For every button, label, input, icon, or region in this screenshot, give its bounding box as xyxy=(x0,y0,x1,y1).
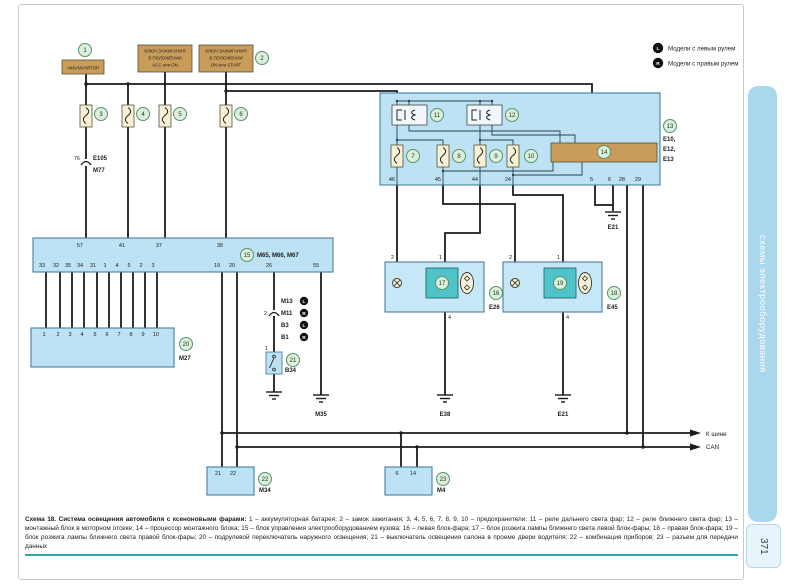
bcm-pin-19: 19 xyxy=(214,263,220,269)
fuse-7-icon xyxy=(391,145,403,167)
page-number: 371 xyxy=(758,538,769,555)
relay-low-beam xyxy=(467,105,502,125)
num-14: 14 xyxy=(601,150,608,156)
caption-title: Схема 18. Система освещения автомобиля с… xyxy=(25,516,247,523)
fuse-10-icon xyxy=(507,145,519,167)
door-conn-pin: 2 xyxy=(264,311,267,317)
bcm-pin-33: 33 xyxy=(39,263,45,269)
hl-right-pin-4: 4 xyxy=(566,315,569,321)
mount-pin-24: 24 xyxy=(505,177,511,183)
m4-pin-14: 14 xyxy=(410,471,416,477)
section-tab: схемы электрооборудования xyxy=(748,86,777,522)
badge-r-1: R xyxy=(302,311,306,317)
bcm-pin-38: 38 xyxy=(217,243,223,249)
fuse-8-icon xyxy=(437,145,449,167)
num-10: 10 xyxy=(528,154,535,160)
ground-icon-e21-mount xyxy=(605,212,621,219)
door-switch-box xyxy=(266,352,282,374)
fuse-3-icon xyxy=(80,105,92,127)
e105-pin: 76 xyxy=(74,156,80,162)
can-label-1: К шине xyxy=(706,431,727,438)
num-16: 16 xyxy=(493,291,500,297)
m27-pin-4: 4 xyxy=(80,332,83,338)
hl-left-pin-1: 1 xyxy=(439,255,442,261)
legend-badge-r: R xyxy=(656,61,660,67)
mount-pin-6: 6 xyxy=(608,177,611,183)
m27-pin-6: 6 xyxy=(105,332,108,338)
m27-pin-2: 2 xyxy=(56,332,59,338)
num-20: 20 xyxy=(183,342,190,348)
ground-label-e21-mount: E21 xyxy=(608,225,619,231)
door-switch-name: B34 xyxy=(285,368,297,374)
hl-left-pin-4: 4 xyxy=(448,315,451,321)
can-arrow-2 xyxy=(690,444,701,451)
conn-b1: B1 xyxy=(281,335,289,341)
hl-right-pin-1: 1 xyxy=(557,255,560,261)
m34-name: M34 xyxy=(259,488,271,494)
ground-icon-m35 xyxy=(313,395,329,402)
conn-m11: M11 xyxy=(281,311,293,317)
xenon-bulb-icon-left xyxy=(461,273,474,294)
num-21: 21 xyxy=(290,358,297,364)
ignition-on-line1: КЛЮЧ ЗАЖИГАНИЯ xyxy=(205,49,246,54)
bcm-pin-41: 41 xyxy=(119,243,125,249)
mount-pin-45: 45 xyxy=(435,177,441,183)
fuse-9-icon xyxy=(474,145,486,167)
bcm-pin-1: 1 xyxy=(103,263,106,269)
ground-icon-door xyxy=(266,392,282,399)
m34-pin-21: 21 xyxy=(215,471,221,477)
bcm-pin-57: 57 xyxy=(77,243,83,249)
fuse-5-icon xyxy=(159,105,171,127)
lhd-rhd-badges: L R L R xyxy=(300,297,308,341)
num-17: 17 xyxy=(439,281,446,287)
legend: L Модели с левым рулем R Модели с правым… xyxy=(653,43,739,68)
ground-label-e21-right: E21 xyxy=(558,412,569,418)
hl-left-pin-2: 2 xyxy=(391,255,394,261)
num-23: 23 xyxy=(440,477,447,483)
mount-pin-28: 28 xyxy=(619,177,625,183)
mount-pin-5: 5 xyxy=(590,177,593,183)
m77-label: M77 xyxy=(93,168,105,174)
num-22: 22 xyxy=(262,477,269,483)
conn-m13: M13 xyxy=(281,299,293,305)
m27-pin-5: 5 xyxy=(93,332,96,338)
m4-pin-6: 6 xyxy=(395,471,398,477)
mount-pin-29: 29 xyxy=(635,177,641,183)
legend-label-l: Модели с левым рулем xyxy=(668,46,735,53)
lamp-icon-right xyxy=(511,279,520,288)
battery-label: АККУМУЛЯТОР xyxy=(67,66,99,71)
relay-high-beam xyxy=(392,105,427,125)
bcm-pin-35: 35 xyxy=(65,263,71,269)
section-tab-label: схемы электрооборудования xyxy=(757,235,768,373)
xenon-bulb-icon-right xyxy=(579,273,592,294)
m27-pin-8: 8 xyxy=(129,332,132,338)
connector-chevron-icon xyxy=(81,162,91,166)
bcm-name: M65, M66, M67 xyxy=(257,253,299,259)
ignition-on-line3: ON или START xyxy=(211,63,242,68)
door-switch-pin-1: 1 xyxy=(265,346,268,352)
fuse-4-icon xyxy=(122,105,134,127)
hl-right-pin-2: 2 xyxy=(509,255,512,261)
mount-pin-44: 44 xyxy=(472,177,478,183)
ground-label-e38: E38 xyxy=(440,412,451,418)
legend-label-r: Модели с правым рулем xyxy=(668,61,739,68)
mount-pin-46: 46 xyxy=(389,177,395,183)
bcm-pin-32: 32 xyxy=(53,263,59,269)
can-arrow-1 xyxy=(690,430,701,437)
bcm-pin-20: 20 xyxy=(229,263,235,269)
m27-pin-9: 9 xyxy=(141,332,144,338)
ground-icon-e38 xyxy=(437,395,453,402)
m4-name: M4 xyxy=(437,488,446,494)
ground-label-m35: M35 xyxy=(315,412,327,418)
manual-page: АККУМУЛЯТОР КЛЮЧ ЗАЖИГАНИЯ В ПОЛОЖЕНИИ A… xyxy=(0,0,800,588)
wiring-diagram: АККУМУЛЯТОР КЛЮЧ ЗАЖИГАНИЯ В ПОЛОЖЕНИИ A… xyxy=(0,0,745,512)
conn-b3: B3 xyxy=(281,323,289,329)
bcm-pin-37: 37 xyxy=(156,243,162,249)
m27-pin-1: 1 xyxy=(42,332,45,338)
bcm-pin-55: 55 xyxy=(313,263,319,269)
bcm-pin-2: 2 xyxy=(139,263,142,269)
legend-badge-l: L xyxy=(657,46,660,52)
can-label-2: CAN xyxy=(706,444,719,451)
badge-r-2: R xyxy=(302,335,306,341)
m34-pin-22: 22 xyxy=(230,471,236,477)
num-15: 15 xyxy=(244,253,251,259)
badge-l-1: L xyxy=(303,299,306,305)
ignition-acc-line2: В ПОЛОЖЕНИИ xyxy=(148,56,181,61)
caption-divider xyxy=(25,554,738,556)
hl-right-name: E45 xyxy=(607,305,618,311)
num-18: 18 xyxy=(611,291,618,297)
mount-ref-e13: E13 xyxy=(663,157,674,163)
num-19: 19 xyxy=(557,281,564,287)
num-12: 12 xyxy=(509,113,516,119)
badge-l-2: L xyxy=(303,323,306,329)
ignition-acc-line1: КЛЮЧ ЗАЖИГАНИЯ xyxy=(144,49,185,54)
m27-pin-3: 3 xyxy=(68,332,71,338)
m27-pin-10: 10 xyxy=(153,332,159,338)
bcm-pin-26: 26 xyxy=(266,263,272,269)
ignition-on-line2: В ПОЛОЖЕНИИ xyxy=(209,56,242,61)
mount-ref-e12: E12, xyxy=(663,147,676,153)
connector-chevron-icon-2 xyxy=(269,313,279,317)
num-11: 11 xyxy=(434,113,441,119)
ground-icon-e21-right xyxy=(555,395,571,402)
bcm-pin-34: 34 xyxy=(77,263,83,269)
page-number-tab: 371 xyxy=(746,524,781,568)
num-13: 13 xyxy=(667,124,674,130)
bcm-pin-5: 5 xyxy=(127,263,130,269)
lamp-icon-left xyxy=(393,279,402,288)
hl-left-name: E26 xyxy=(489,305,500,311)
m4-block xyxy=(385,467,432,495)
bcm-pin-4: 4 xyxy=(115,263,118,269)
mount-ref-e10: E10, xyxy=(663,137,676,143)
m27-name: M27 xyxy=(179,356,191,362)
e105-label: E105 xyxy=(93,156,108,162)
m27-pin-7: 7 xyxy=(117,332,120,338)
fuse-6-icon xyxy=(220,105,232,127)
figure-caption: Схема 18. Система освещения автомобиля с… xyxy=(25,516,738,552)
bcm-pin-31: 31 xyxy=(90,263,96,269)
bcm-pin-3: 3 xyxy=(151,263,154,269)
ignition-acc-line3: ACC или ON xyxy=(152,63,178,68)
